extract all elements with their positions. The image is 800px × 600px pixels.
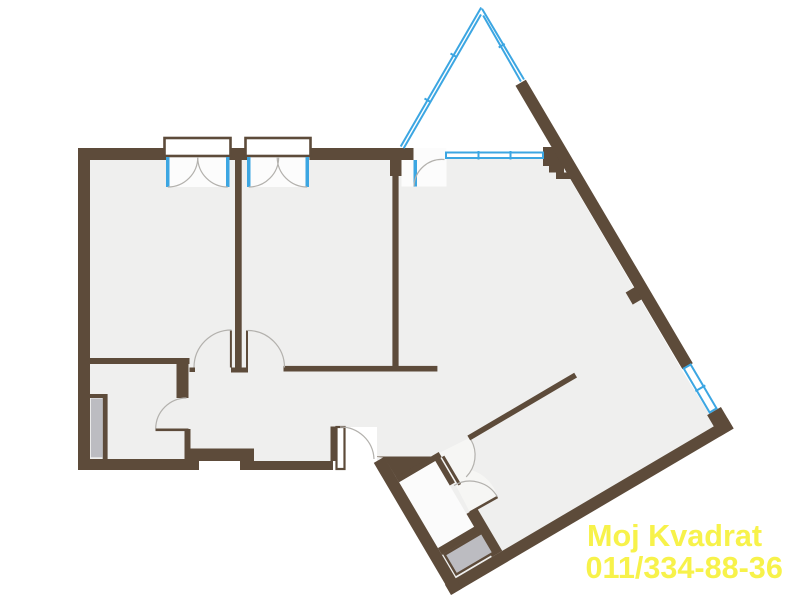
svg-text:011/334-88-36: 011/334-88-36 [586, 551, 783, 585]
svg-text:Moj Kvadrat: Moj Kvadrat [587, 519, 762, 553]
